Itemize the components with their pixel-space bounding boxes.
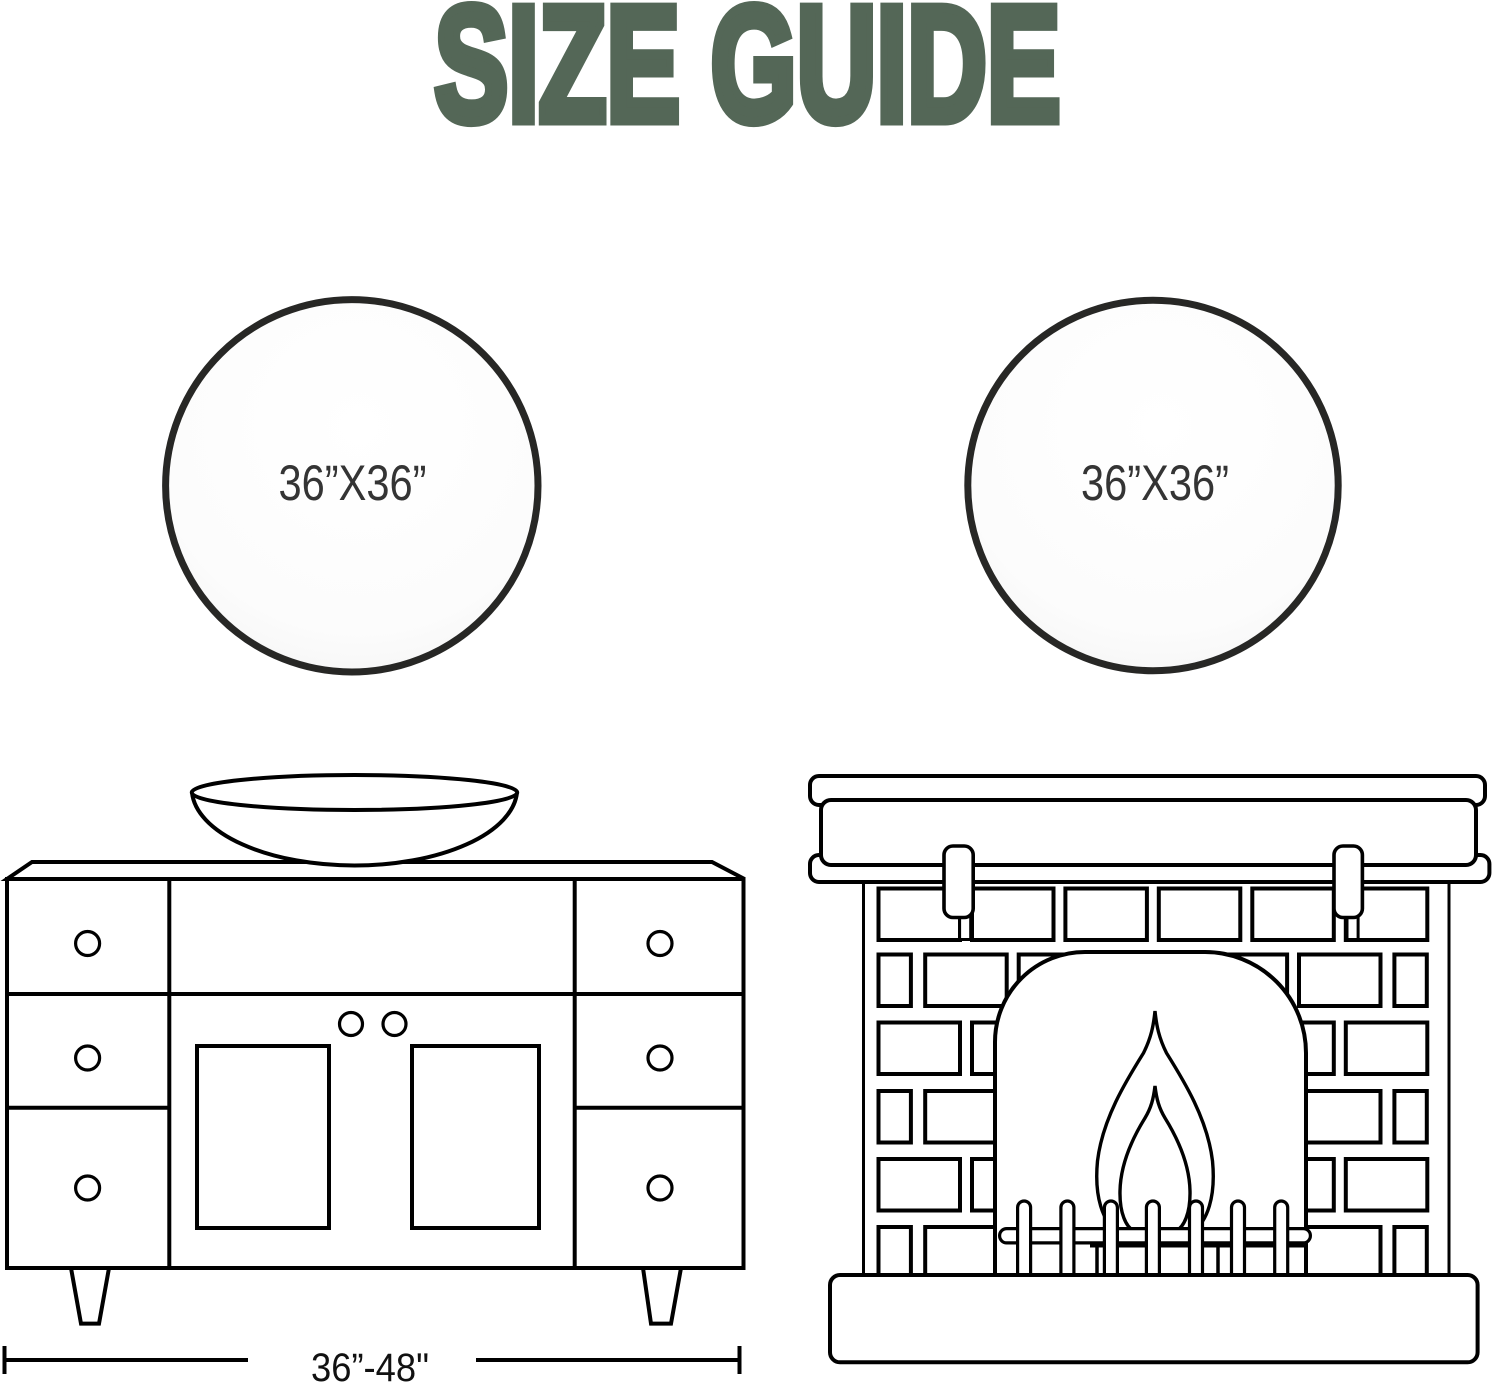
svg-text:SIZE GUIDE: SIZE GUIDE — [435, 0, 1061, 156]
svg-text:36”-48": 36”-48" — [311, 1346, 429, 1389]
svg-text:36”X36”: 36”X36” — [279, 455, 427, 511]
svg-text:36”X36”: 36”X36” — [1081, 455, 1229, 511]
